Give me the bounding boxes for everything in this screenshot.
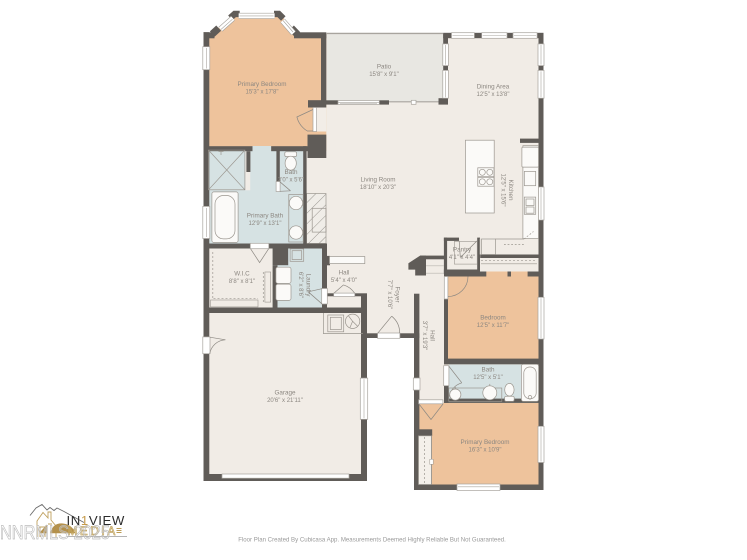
svg-text:Hall: Hall <box>339 270 350 277</box>
svg-text:18'10" x 20'3": 18'10" x 20'3" <box>360 185 396 191</box>
svg-text:Garage: Garage <box>274 390 296 397</box>
svg-text:12'5" x 13'8": 12'5" x 13'8" <box>477 92 510 98</box>
svg-text:16'3" x 10'9": 16'3" x 10'9" <box>469 448 502 454</box>
svg-text:Kitchen: Kitchen <box>507 179 514 201</box>
svg-text:6'2" x 8'6": 6'2" x 8'6" <box>297 272 303 298</box>
svg-text:7'7" x 10'6": 7'7" x 10'6" <box>386 280 392 310</box>
svg-text:Floor Plan Created By Cubicasa: Floor Plan Created By Cubicasa App. Meas… <box>238 537 506 544</box>
svg-text:3'7" x 19'3": 3'7" x 19'3" <box>421 321 427 351</box>
svg-text:NNRMLS 2025: NNRMLS 2025 <box>0 523 110 544</box>
svg-text:15'8" x 9'1": 15'8" x 9'1" <box>369 72 399 78</box>
svg-text:Foyer: Foyer <box>394 286 401 302</box>
svg-text:W.I.C: W.I.C <box>234 271 250 278</box>
svg-text:Bedroom: Bedroom <box>480 315 506 322</box>
svg-text:Bath: Bath <box>482 367 495 374</box>
svg-text:Patio: Patio <box>377 64 392 71</box>
svg-text:Primary Bath: Primary Bath <box>247 213 284 220</box>
svg-text:5'4" x 4'0": 5'4" x 4'0" <box>331 278 357 284</box>
svg-text:Laundry: Laundry <box>305 274 312 298</box>
svg-text:Primary Bedroom: Primary Bedroom <box>238 81 287 88</box>
svg-text:4'1" x 4'4": 4'1" x 4'4" <box>449 255 475 261</box>
svg-text:3'0" x 5'6": 3'0" x 5'6" <box>278 178 304 184</box>
svg-text:15'3" x 17'8": 15'3" x 17'8" <box>246 90 279 96</box>
svg-text:12'9" x 13'1": 12'9" x 13'1" <box>249 221 282 227</box>
svg-text:Living Room: Living Room <box>361 177 396 184</box>
svg-text:Bath: Bath <box>285 169 298 176</box>
svg-text:Primary Bedroom: Primary Bedroom <box>461 439 510 446</box>
svg-text:20'6" x 21'11": 20'6" x 21'11" <box>267 398 303 404</box>
svg-text:12'5" x 11'7": 12'5" x 11'7" <box>477 323 509 329</box>
svg-text:Pantry: Pantry <box>453 247 472 254</box>
svg-text:Hall: Hall <box>429 330 436 341</box>
svg-text:12'5" x 15'6": 12'5" x 15'6" <box>500 174 506 207</box>
svg-text:Dining Area: Dining Area <box>477 84 510 91</box>
svg-text:12'5" x 5'1": 12'5" x 5'1" <box>473 375 503 381</box>
svg-text:8'8" x 8'1": 8'8" x 8'1" <box>229 279 255 285</box>
